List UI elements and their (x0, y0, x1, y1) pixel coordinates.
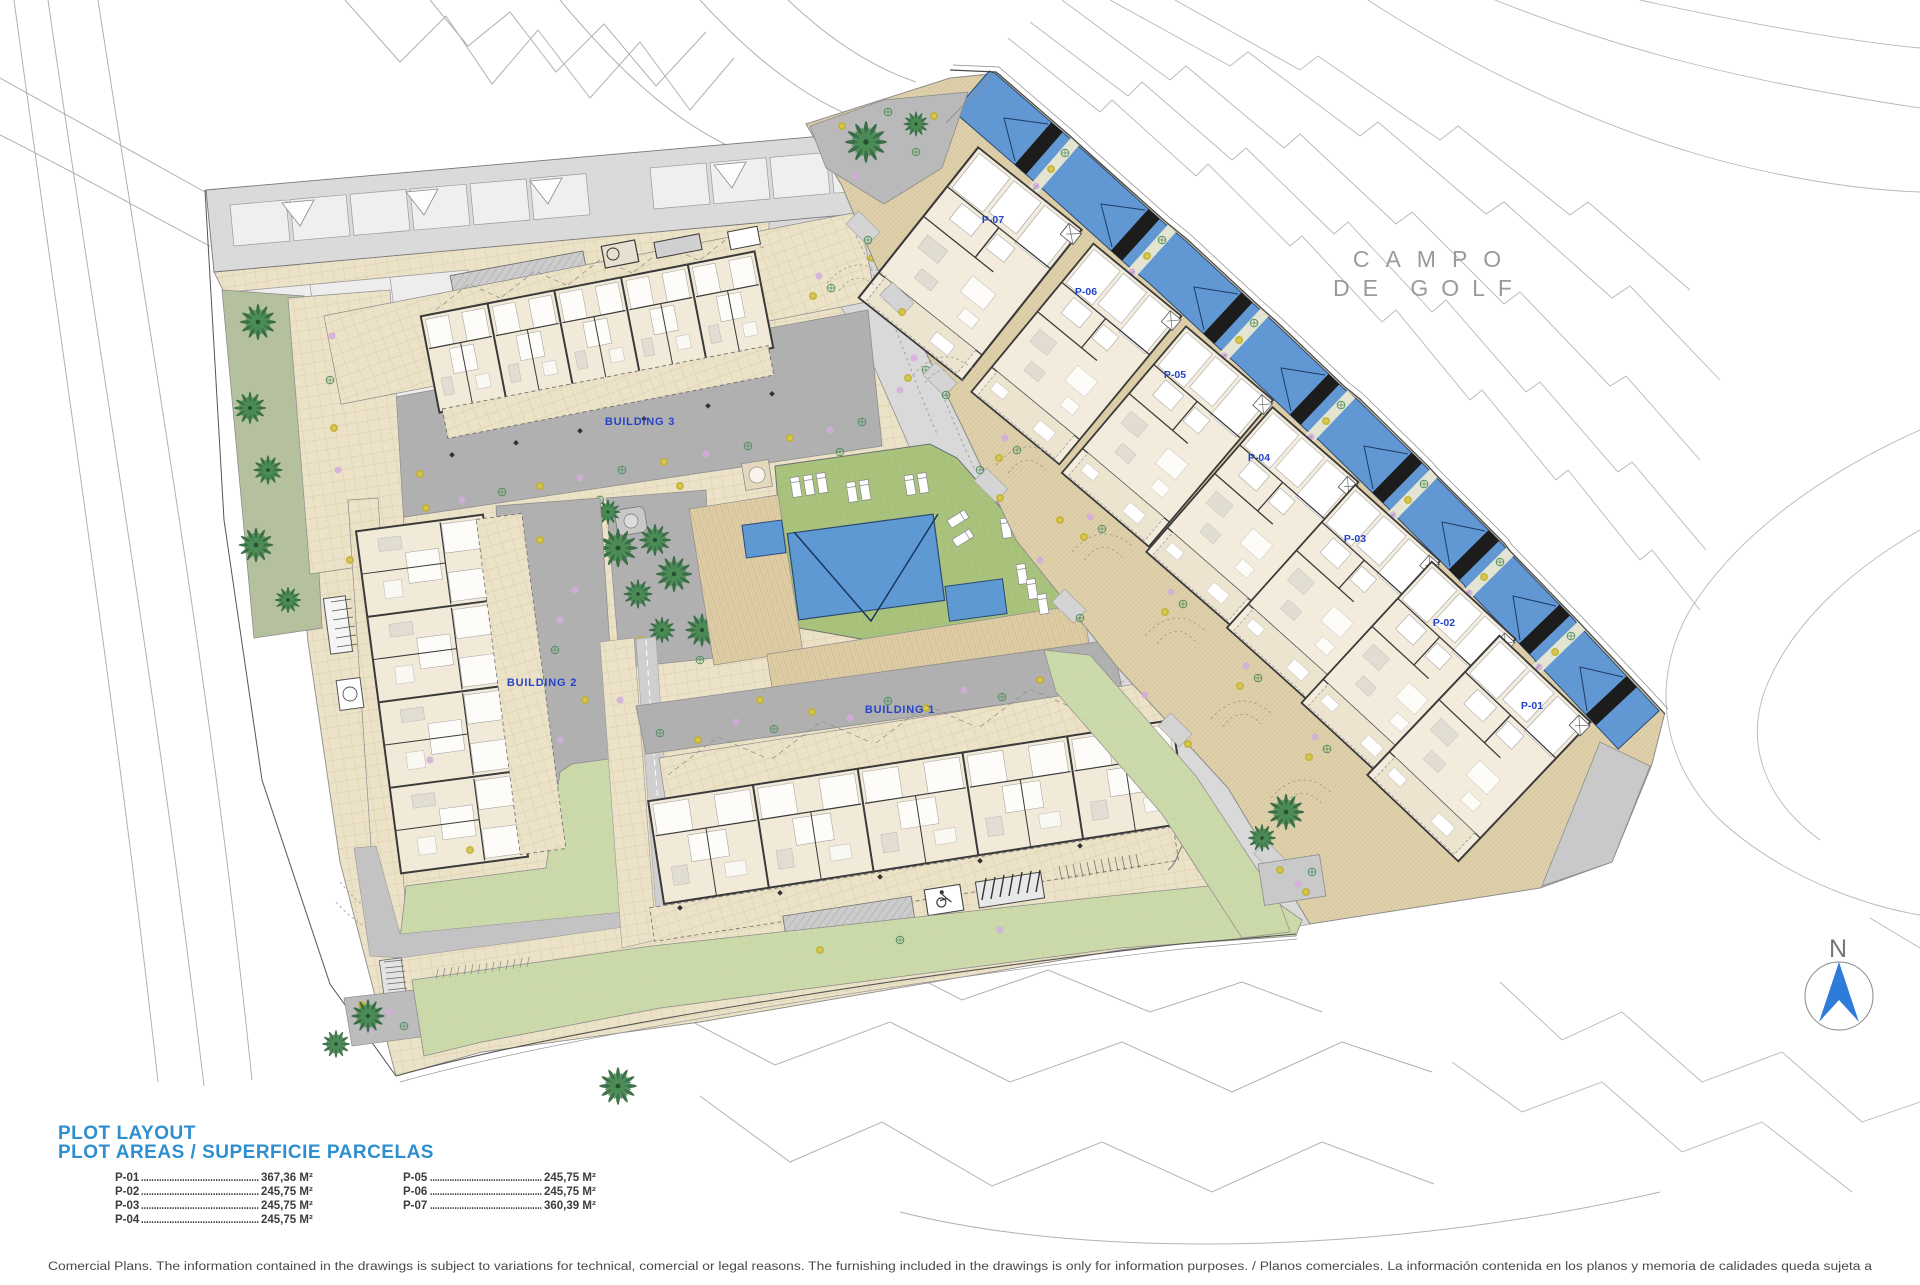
svg-text:..............................: ........................................… (430, 1200, 542, 1212)
svg-text:..............................: ........................................… (430, 1172, 542, 1184)
svg-text:..............................: ........................................… (141, 1214, 259, 1226)
svg-text:N: N (1829, 935, 1847, 963)
svg-text:P-02: P-02 (1433, 617, 1455, 629)
svg-text:..............................: ........................................… (141, 1186, 259, 1198)
svg-text:P-06: P-06 (1075, 286, 1097, 298)
svg-text:BUILDING 3: BUILDING 3 (605, 416, 675, 428)
svg-text:DE GOLF: DE GOLF (1333, 275, 1525, 301)
svg-text:245,75 M²: 245,75 M² (261, 1186, 313, 1198)
svg-text:P-01: P-01 (1521, 700, 1543, 712)
svg-text:BUILDING 2: BUILDING 2 (507, 677, 577, 689)
svg-text:P-07: P-07 (982, 214, 1004, 226)
svg-text:..............................: ........................................… (430, 1186, 542, 1198)
svg-text:P-06: P-06 (403, 1186, 427, 1198)
svg-text:245,75 M²: 245,75 M² (544, 1172, 596, 1184)
svg-text:P-04: P-04 (115, 1214, 140, 1226)
svg-text:P-05: P-05 (403, 1172, 428, 1184)
svg-text:245,75 M²: 245,75 M² (261, 1200, 313, 1212)
svg-text:360,39 M²: 360,39 M² (544, 1200, 596, 1212)
svg-text:P-04: P-04 (1248, 452, 1270, 464)
svg-text:P-02: P-02 (115, 1186, 139, 1198)
svg-text:PLOT AREAS / SUPERFICIE PARCEL: PLOT AREAS / SUPERFICIE PARCELAS (58, 1142, 434, 1163)
svg-text:P-05: P-05 (1164, 369, 1186, 381)
svg-text:P-03: P-03 (1344, 533, 1366, 545)
svg-text:245,75 M²: 245,75 M² (544, 1186, 596, 1198)
svg-text:CAMPO: CAMPO (1353, 246, 1517, 272)
svg-text:Comercial Plans. The informati: Comercial Plans. The information contain… (48, 1261, 1873, 1273)
svg-text:PLOT LAYOUT: PLOT LAYOUT (58, 1123, 196, 1144)
svg-text:367,36 M²: 367,36 M² (261, 1172, 313, 1184)
svg-text:..............................: ........................................… (141, 1172, 259, 1184)
svg-text:BUILDING 1: BUILDING 1 (865, 704, 935, 716)
svg-text:..............................: ........................................… (141, 1200, 259, 1212)
svg-text:P-07: P-07 (403, 1200, 427, 1212)
svg-text:P-01: P-01 (115, 1172, 140, 1184)
svg-text:P-03: P-03 (115, 1200, 139, 1212)
svg-text:245,75 M²: 245,75 M² (261, 1214, 313, 1226)
